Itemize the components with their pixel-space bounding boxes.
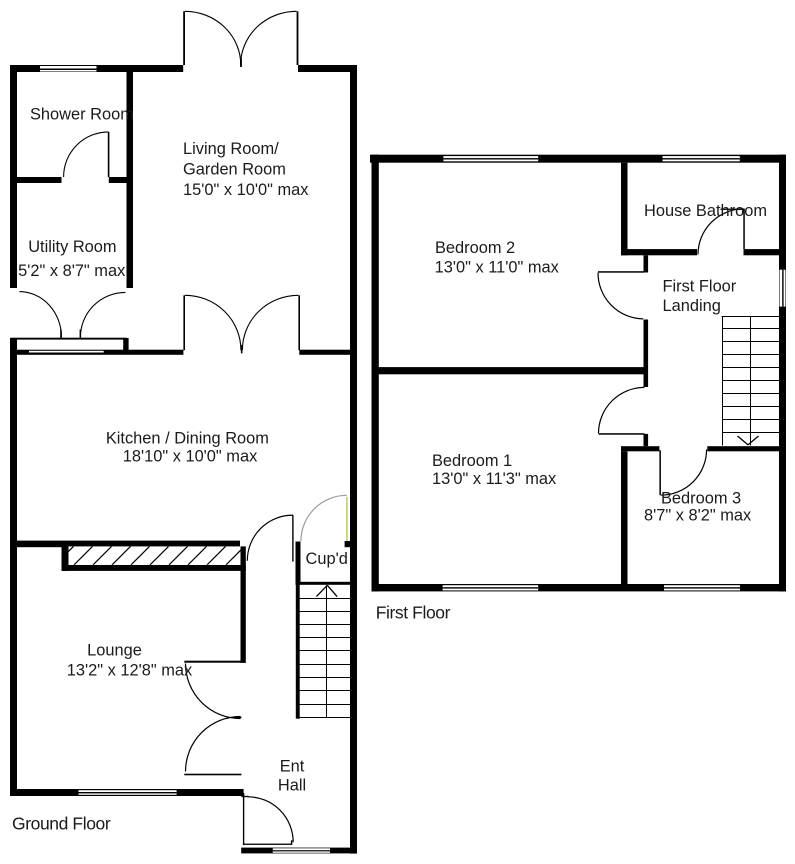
svg-text:13'2" x 12'8" max: 13'2" x 12'8" max	[67, 662, 193, 680]
svg-text:Kitchen / Dining Room: Kitchen / Dining Room	[106, 430, 269, 448]
svg-text:13'0" x 11'0" max: 13'0" x 11'0" max	[435, 259, 560, 277]
svg-text:Ground Floor: Ground Floor	[12, 814, 111, 834]
svg-text:8'7" x 8'2" max: 8'7" x 8'2" max	[644, 506, 752, 524]
svg-text:Bedroom 1: Bedroom 1	[432, 452, 512, 470]
svg-text:Bedroom 2: Bedroom 2	[435, 239, 515, 257]
svg-text:Lounge: Lounge	[87, 642, 142, 660]
svg-text:House Bathroom: House Bathroom	[644, 202, 767, 220]
svg-text:Garden Room: Garden Room	[183, 161, 286, 179]
svg-text:Hall: Hall	[278, 777, 306, 795]
svg-text:13'0" x 11'3" max: 13'0" x 11'3" max	[432, 470, 557, 488]
svg-text:18'10" x 10'0" max: 18'10" x 10'0" max	[123, 447, 258, 465]
svg-text:Living Room/: Living Room/	[183, 140, 279, 158]
svg-text:5'2" x 8'7" max: 5'2" x 8'7" max	[18, 262, 126, 280]
svg-text:Cup'd: Cup'd	[306, 550, 348, 568]
svg-text:Landing: Landing	[663, 297, 721, 315]
svg-text:First Floor: First Floor	[376, 602, 451, 622]
svg-text:Ent: Ent	[280, 758, 305, 776]
svg-text:Bedroom 3: Bedroom 3	[661, 489, 741, 507]
svg-text:Utility Room: Utility Room	[28, 238, 116, 256]
svg-text:15'0" x 10'0" max: 15'0" x 10'0" max	[183, 181, 309, 199]
svg-text:Shower Room: Shower Room	[30, 106, 134, 124]
svg-text:First Floor: First Floor	[663, 278, 737, 296]
